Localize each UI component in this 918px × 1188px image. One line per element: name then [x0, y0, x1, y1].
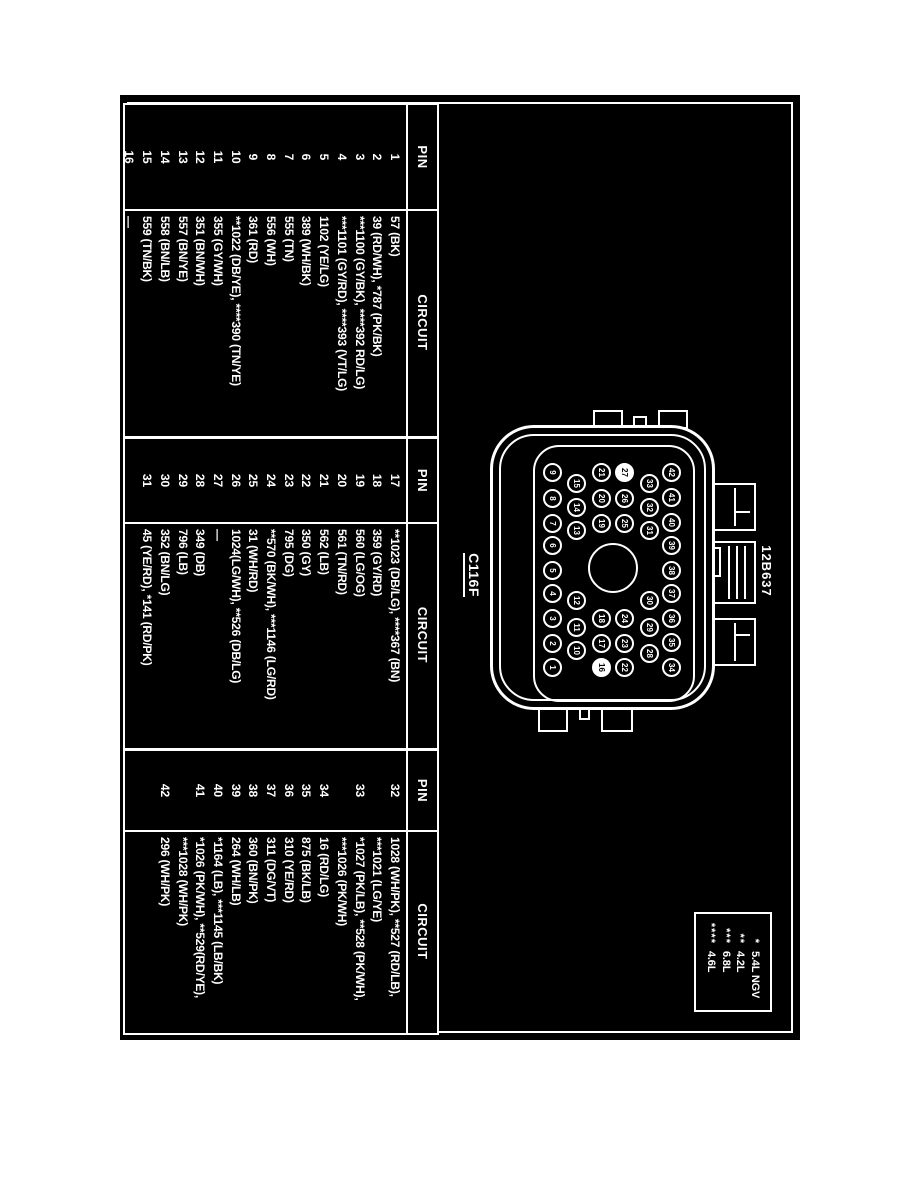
- pin-28: 28: [640, 644, 659, 663]
- circuit-cell: **1022 (DB/YE), ****390 (TN/YE): [226, 209, 244, 436]
- column-divider: [125, 522, 437, 524]
- circuit-cell: 795 (DG): [279, 522, 297, 748]
- circuit-cell: **570 (BK/WH), ***1146 (LG/RD): [261, 522, 279, 748]
- pin-30: 30: [640, 591, 659, 610]
- pin-10: 10: [567, 641, 586, 660]
- circuit-cell: 562 (LB): [314, 522, 332, 748]
- pin-42: 42: [662, 463, 681, 482]
- table-row: 27—: [208, 439, 226, 748]
- pin-cell: 12: [191, 105, 209, 209]
- pin-cell: 26: [226, 439, 244, 522]
- legend-row: ***6.8L: [719, 918, 734, 1004]
- pin-cell: 10: [226, 105, 244, 209]
- table-row: 157 (BK): [385, 105, 403, 436]
- pin-cell: 30: [155, 439, 173, 522]
- circuit-cell: 352 (BN/LG): [155, 522, 173, 748]
- pin-cell: 37: [261, 751, 279, 830]
- pin-cell: 17: [385, 439, 403, 522]
- legend-label: 4.2L: [733, 951, 748, 1004]
- circuit-cell: **1023 (DB/LG), ****367 (BN): [385, 522, 403, 748]
- circuit-cell: 296 (WH/PK): [155, 830, 173, 1033]
- circuit-header: CIRCUIT: [415, 209, 430, 436]
- diagram-box: 4241403938373635343332313029282726252423…: [120, 95, 800, 1040]
- circuit-cell: 45 (YE/RD), *141 (RD/PK): [137, 522, 155, 748]
- pin-4: 4: [543, 584, 562, 603]
- circuit-cell: 311 (DG/VT): [261, 830, 279, 1033]
- circuit-cell: 310 (YE/RD): [279, 830, 297, 1033]
- pin-cell: 20: [332, 439, 350, 522]
- legend-symbol: ***: [719, 918, 734, 951]
- circuit-cell: 875 (BK/LB): [297, 830, 315, 1033]
- table-row: 14558 (BN/LB): [155, 105, 173, 436]
- circuit-cell: 389 (WH/BK): [297, 209, 315, 436]
- pin-cell: 5: [314, 105, 332, 209]
- circuit-cell: 355 (GY/WH): [208, 209, 226, 436]
- table-row: 39264 (WH/LB): [226, 751, 244, 1033]
- rotated-page: 4241403938373635343332313029282726252423…: [0, 0, 918, 1188]
- legend-row: **4.2L: [733, 918, 748, 1004]
- table-row: 19560 (LG/OG): [350, 439, 368, 748]
- table-row: 38360 (BN/PK): [244, 751, 262, 1033]
- pin-41: 41: [662, 488, 681, 507]
- pin-cell: 13: [173, 105, 191, 209]
- pin-cell: 32: [385, 751, 403, 830]
- circuit-cell: 561 (TN/RD): [332, 522, 350, 748]
- pin-7: 7: [543, 514, 562, 533]
- circuit-cell: 560 (LG/OG): [350, 522, 368, 748]
- bracket-detail-line: [736, 634, 750, 636]
- circuit-cell: *1026 (PK/WH), **529(RD/YE), ***1028 (WH…: [173, 830, 208, 1033]
- circuit-cell: —: [208, 522, 226, 748]
- table-row: 29796 (LB): [173, 439, 191, 748]
- legend-row: ****4.6L: [704, 918, 719, 1004]
- circuit-cell: 39 (RD/WH), *787 (PK/BK): [368, 209, 386, 436]
- table-row: 40*1164 (LB), ***1145 (LB/BK): [208, 751, 226, 1033]
- pin-38: 38: [662, 561, 681, 580]
- pin-32: 32: [640, 498, 659, 517]
- circuit-cell: 1024(LG/WH), **526 (DB/LG): [226, 522, 244, 748]
- shell-tab: [601, 708, 633, 732]
- pin-12: 12: [567, 591, 586, 610]
- circuit-cell: 31 (WH/RD): [244, 522, 262, 748]
- bracket-detail-line: [734, 623, 736, 661]
- pin-cell: 15: [137, 105, 155, 209]
- circuit-cell: —: [120, 209, 138, 436]
- circuit-cell: 361 (RD): [244, 209, 262, 436]
- pin-cell: 36: [279, 751, 297, 830]
- pin-14: 14: [567, 498, 586, 517]
- pin-cell: 39: [226, 751, 244, 830]
- bracket-detail-line: [734, 488, 736, 526]
- pin-24: 24: [615, 609, 634, 628]
- circuit-cell: 350 (GY): [297, 522, 315, 748]
- table-row: 17**1023 (DB/LG), ****367 (BN): [385, 439, 403, 748]
- pin-cell: 18: [368, 439, 386, 522]
- pin-cell: 38: [244, 751, 262, 830]
- table-rows: 321028 (WH/PK), **527 (RD/LB), ***1021 (…: [155, 751, 406, 1033]
- circuit-cell: 359 (GY/RD): [368, 522, 386, 748]
- table-row: 16—: [120, 105, 138, 436]
- pin-cell: 6: [297, 105, 315, 209]
- table-row: 21562 (LB): [314, 439, 332, 748]
- pin-cell: 1: [385, 105, 403, 209]
- circuit-cell: ***1101 (GY/RD), ****393 (VT/LG): [332, 209, 350, 436]
- table-row: 3416 (RD/LG): [314, 751, 332, 1033]
- pin-2: 2: [543, 634, 562, 653]
- circuit-cell: 1028 (WH/PK), **527 (RD/LB), ***1021 (LG…: [368, 830, 403, 1033]
- table-header: PIN CIRCUIT: [406, 439, 437, 748]
- circuit-cell: 16 (RD/LG): [314, 830, 332, 1033]
- bracket-detail-line: [744, 546, 746, 599]
- table-row: 239 (RD/WH), *787 (PK/BK): [368, 105, 386, 436]
- table-row: 35875 (BK/LB): [297, 751, 315, 1033]
- table-row: 321028 (WH/PK), **527 (RD/LB), ***1021 (…: [368, 751, 403, 1033]
- circuit-cell: 557 (BN/YE): [173, 209, 191, 436]
- legend-label: 6.8L: [719, 951, 734, 1004]
- table-row: 2531 (WH/RD): [244, 439, 262, 748]
- pin-21: 21: [592, 463, 611, 482]
- center-hole: [588, 543, 638, 593]
- pin-cell: 19: [350, 439, 368, 522]
- legend-row: *5.4L NGV: [748, 918, 763, 1004]
- table-row: 13557 (BN/YE): [173, 105, 191, 436]
- bracket-detail-line: [728, 546, 730, 599]
- table-rows: 157 (BK)239 (RD/WH), *787 (PK/BK)3***110…: [120, 105, 406, 436]
- circuit-cell: 796 (LB): [173, 522, 191, 748]
- pin-table-1: PIN CIRCUIT 157 (BK)239 (RD/WH), *787 (P…: [123, 103, 439, 438]
- circuit-cell: 559 (TN/BK): [137, 209, 155, 436]
- pin-cell: 3: [350, 105, 368, 209]
- engine-legend: *5.4L NGV**4.2L***6.8L****4.6L: [694, 912, 772, 1012]
- table-row: 30352 (BN/LG): [155, 439, 173, 748]
- pin-26: 26: [615, 489, 634, 508]
- legend-symbol: ****: [704, 918, 719, 951]
- circuit-cell: 349 (DB): [191, 522, 209, 748]
- pin-cell: 25: [244, 439, 262, 522]
- pin-cell: 42: [155, 751, 173, 830]
- pin-header: PIN: [415, 439, 430, 522]
- table-row: 261024(LG/WH), **526 (DB/LG): [226, 439, 244, 748]
- pin-13: 13: [567, 521, 586, 540]
- part-number-label: 12B637: [759, 506, 774, 636]
- table-row: 4***1101 (GY/RD), ****393 (VT/LG): [332, 105, 350, 436]
- circuit-cell: 1102 (YE/LG): [314, 209, 332, 436]
- mounting-bracket-middle: [711, 541, 756, 604]
- table-row: 20561 (TN/RD): [332, 439, 350, 748]
- table-header: PIN CIRCUIT: [406, 105, 437, 436]
- pin-table-2: PIN CIRCUIT 17**1023 (DB/LG), ****367 (B…: [123, 437, 439, 750]
- legend-symbol: *: [748, 918, 763, 951]
- circuit-cell: 558 (BN/LB): [155, 209, 173, 436]
- table-header: PIN CIRCUIT: [406, 751, 437, 1033]
- pin-cell: 41: [191, 751, 209, 830]
- pin-29: 29: [640, 618, 659, 637]
- pin-17: 17: [592, 634, 611, 653]
- pin-5: 5: [543, 561, 562, 580]
- pin-cell: 40: [208, 751, 226, 830]
- pin-27: 27: [615, 463, 634, 482]
- pin-40: 40: [662, 513, 681, 532]
- table-row: 23795 (DG): [279, 439, 297, 748]
- table-row: 11355 (GY/WH): [208, 105, 226, 436]
- pin-cell: 24: [261, 439, 279, 522]
- pin-cell: 35: [297, 751, 315, 830]
- circuit-cell: 264 (WH/LB): [226, 830, 244, 1033]
- pin-cell: 8: [261, 105, 279, 209]
- bracket-detail-line: [736, 511, 750, 513]
- pin-cell: 27: [208, 439, 226, 522]
- table-row: 7555 (TN): [279, 105, 297, 436]
- column-divider: [125, 209, 437, 211]
- pin-cell: 23: [279, 439, 297, 522]
- pin-19: 19: [592, 514, 611, 533]
- table-row: 3***1100 (GY/BK), ****392 RD/LG): [350, 105, 368, 436]
- circuit-cell: 555 (TN): [279, 209, 297, 436]
- pin-cell: 21: [314, 439, 332, 522]
- shell-tab: [538, 708, 568, 732]
- table-row: 6389 (WH/BK): [297, 105, 315, 436]
- pin-37: 37: [662, 584, 681, 603]
- legend-symbol: **: [733, 918, 748, 951]
- legend-label: 5.4L NGV: [748, 951, 763, 1004]
- pin-cell: 33: [350, 751, 368, 830]
- table-rows: 17**1023 (DB/LG), ****367 (BN)18359 (GY/…: [137, 439, 406, 748]
- pin-16: 16: [592, 658, 611, 677]
- pin-1: 1: [543, 658, 562, 677]
- pin-25: 25: [615, 514, 634, 533]
- bracket-detail-line: [736, 546, 738, 599]
- column-divider: [125, 830, 437, 832]
- pin-cell: 31: [137, 439, 155, 522]
- table-row: 24**570 (BK/WH), ***1146 (LG/RD): [261, 439, 279, 748]
- table-row: 37311 (DG/VT): [261, 751, 279, 1033]
- circuit-cell: 351 (BN/WH): [191, 209, 209, 436]
- table-row: 33*1027 (PK/LB), **528 (PK/WH), ***1026 …: [332, 751, 367, 1033]
- legend-label: 4.6L: [704, 951, 719, 1004]
- table-row: 8556 (WH): [261, 105, 279, 436]
- pin-20: 20: [592, 489, 611, 508]
- pin-18: 18: [592, 609, 611, 628]
- circuit-cell: *1164 (LB), ***1145 (LB/BK): [208, 830, 226, 1033]
- pin-header: PIN: [415, 751, 430, 830]
- table-row: 28349 (DB): [191, 439, 209, 748]
- pin-11: 11: [567, 618, 586, 637]
- pin-cell: 2: [368, 105, 386, 209]
- pin-header: PIN: [415, 105, 430, 209]
- pin-36: 36: [662, 609, 681, 628]
- pin-cell: 16: [120, 105, 138, 209]
- table-row: 12351 (BN/WH): [191, 105, 209, 436]
- mounting-bracket-left: [711, 483, 756, 531]
- table-row: 18359 (GY/RD): [368, 439, 386, 748]
- pin-34: 34: [662, 658, 681, 677]
- pin-31: 31: [640, 521, 659, 540]
- table-row: 36310 (YE/RD): [279, 751, 297, 1033]
- connector-drawing: 4241403938373635343332313029282726252423…: [490, 425, 715, 710]
- circuit-cell: 360 (BN/PK): [244, 830, 262, 1033]
- mounting-bracket-right: [711, 618, 756, 666]
- table-row: 41*1026 (PK/WH), **529(RD/YE), ***1028 (…: [173, 751, 208, 1033]
- pin-39: 39: [662, 536, 681, 555]
- pin-6: 6: [543, 536, 562, 555]
- circuit-header: CIRCUIT: [415, 522, 430, 748]
- pin-table-3: PIN CIRCUIT 321028 (WH/PK), **527 (RD/LB…: [123, 749, 439, 1035]
- table-row: 51102 (YE/LG): [314, 105, 332, 436]
- pin-15: 15: [567, 474, 586, 493]
- circuit-cell: 57 (BK): [385, 209, 403, 436]
- pin-3: 3: [543, 609, 562, 628]
- pin-cell: 34: [314, 751, 332, 830]
- pin-33: 33: [640, 474, 659, 493]
- table-row: 42296 (WH/PK): [155, 751, 173, 1033]
- pin-cell: 29: [173, 439, 191, 522]
- pin-22: 22: [615, 658, 634, 677]
- connector-name-label: C116F: [466, 530, 482, 620]
- circuit-cell: *1027 (PK/LB), **528 (PK/WH), ***1026 (P…: [332, 830, 367, 1033]
- pin-cell: 11: [208, 105, 226, 209]
- pin-23: 23: [615, 634, 634, 653]
- table-row: 10**1022 (DB/YE), ****390 (TN/YE): [226, 105, 244, 436]
- pin-cell: 14: [155, 105, 173, 209]
- pin-9: 9: [543, 463, 562, 482]
- pin-cell: 9: [244, 105, 262, 209]
- circuit-cell: 556 (WH): [261, 209, 279, 436]
- table-row: 22350 (GY): [297, 439, 315, 748]
- pin-cell: 28: [191, 439, 209, 522]
- table-row: 9361 (RD): [244, 105, 262, 436]
- pin-cell: 4: [332, 105, 350, 209]
- circuit-header: CIRCUIT: [415, 830, 430, 1033]
- circuit-cell: ***1100 (GY/BK), ****392 RD/LG): [350, 209, 368, 436]
- table-row: 3145 (YE/RD), *141 (RD/PK): [137, 439, 155, 748]
- table-row: 15559 (TN/BK): [137, 105, 155, 436]
- pin-8: 8: [543, 489, 562, 508]
- pin-cell: 7: [279, 105, 297, 209]
- pin-35: 35: [662, 633, 681, 652]
- pin-cell: 22: [297, 439, 315, 522]
